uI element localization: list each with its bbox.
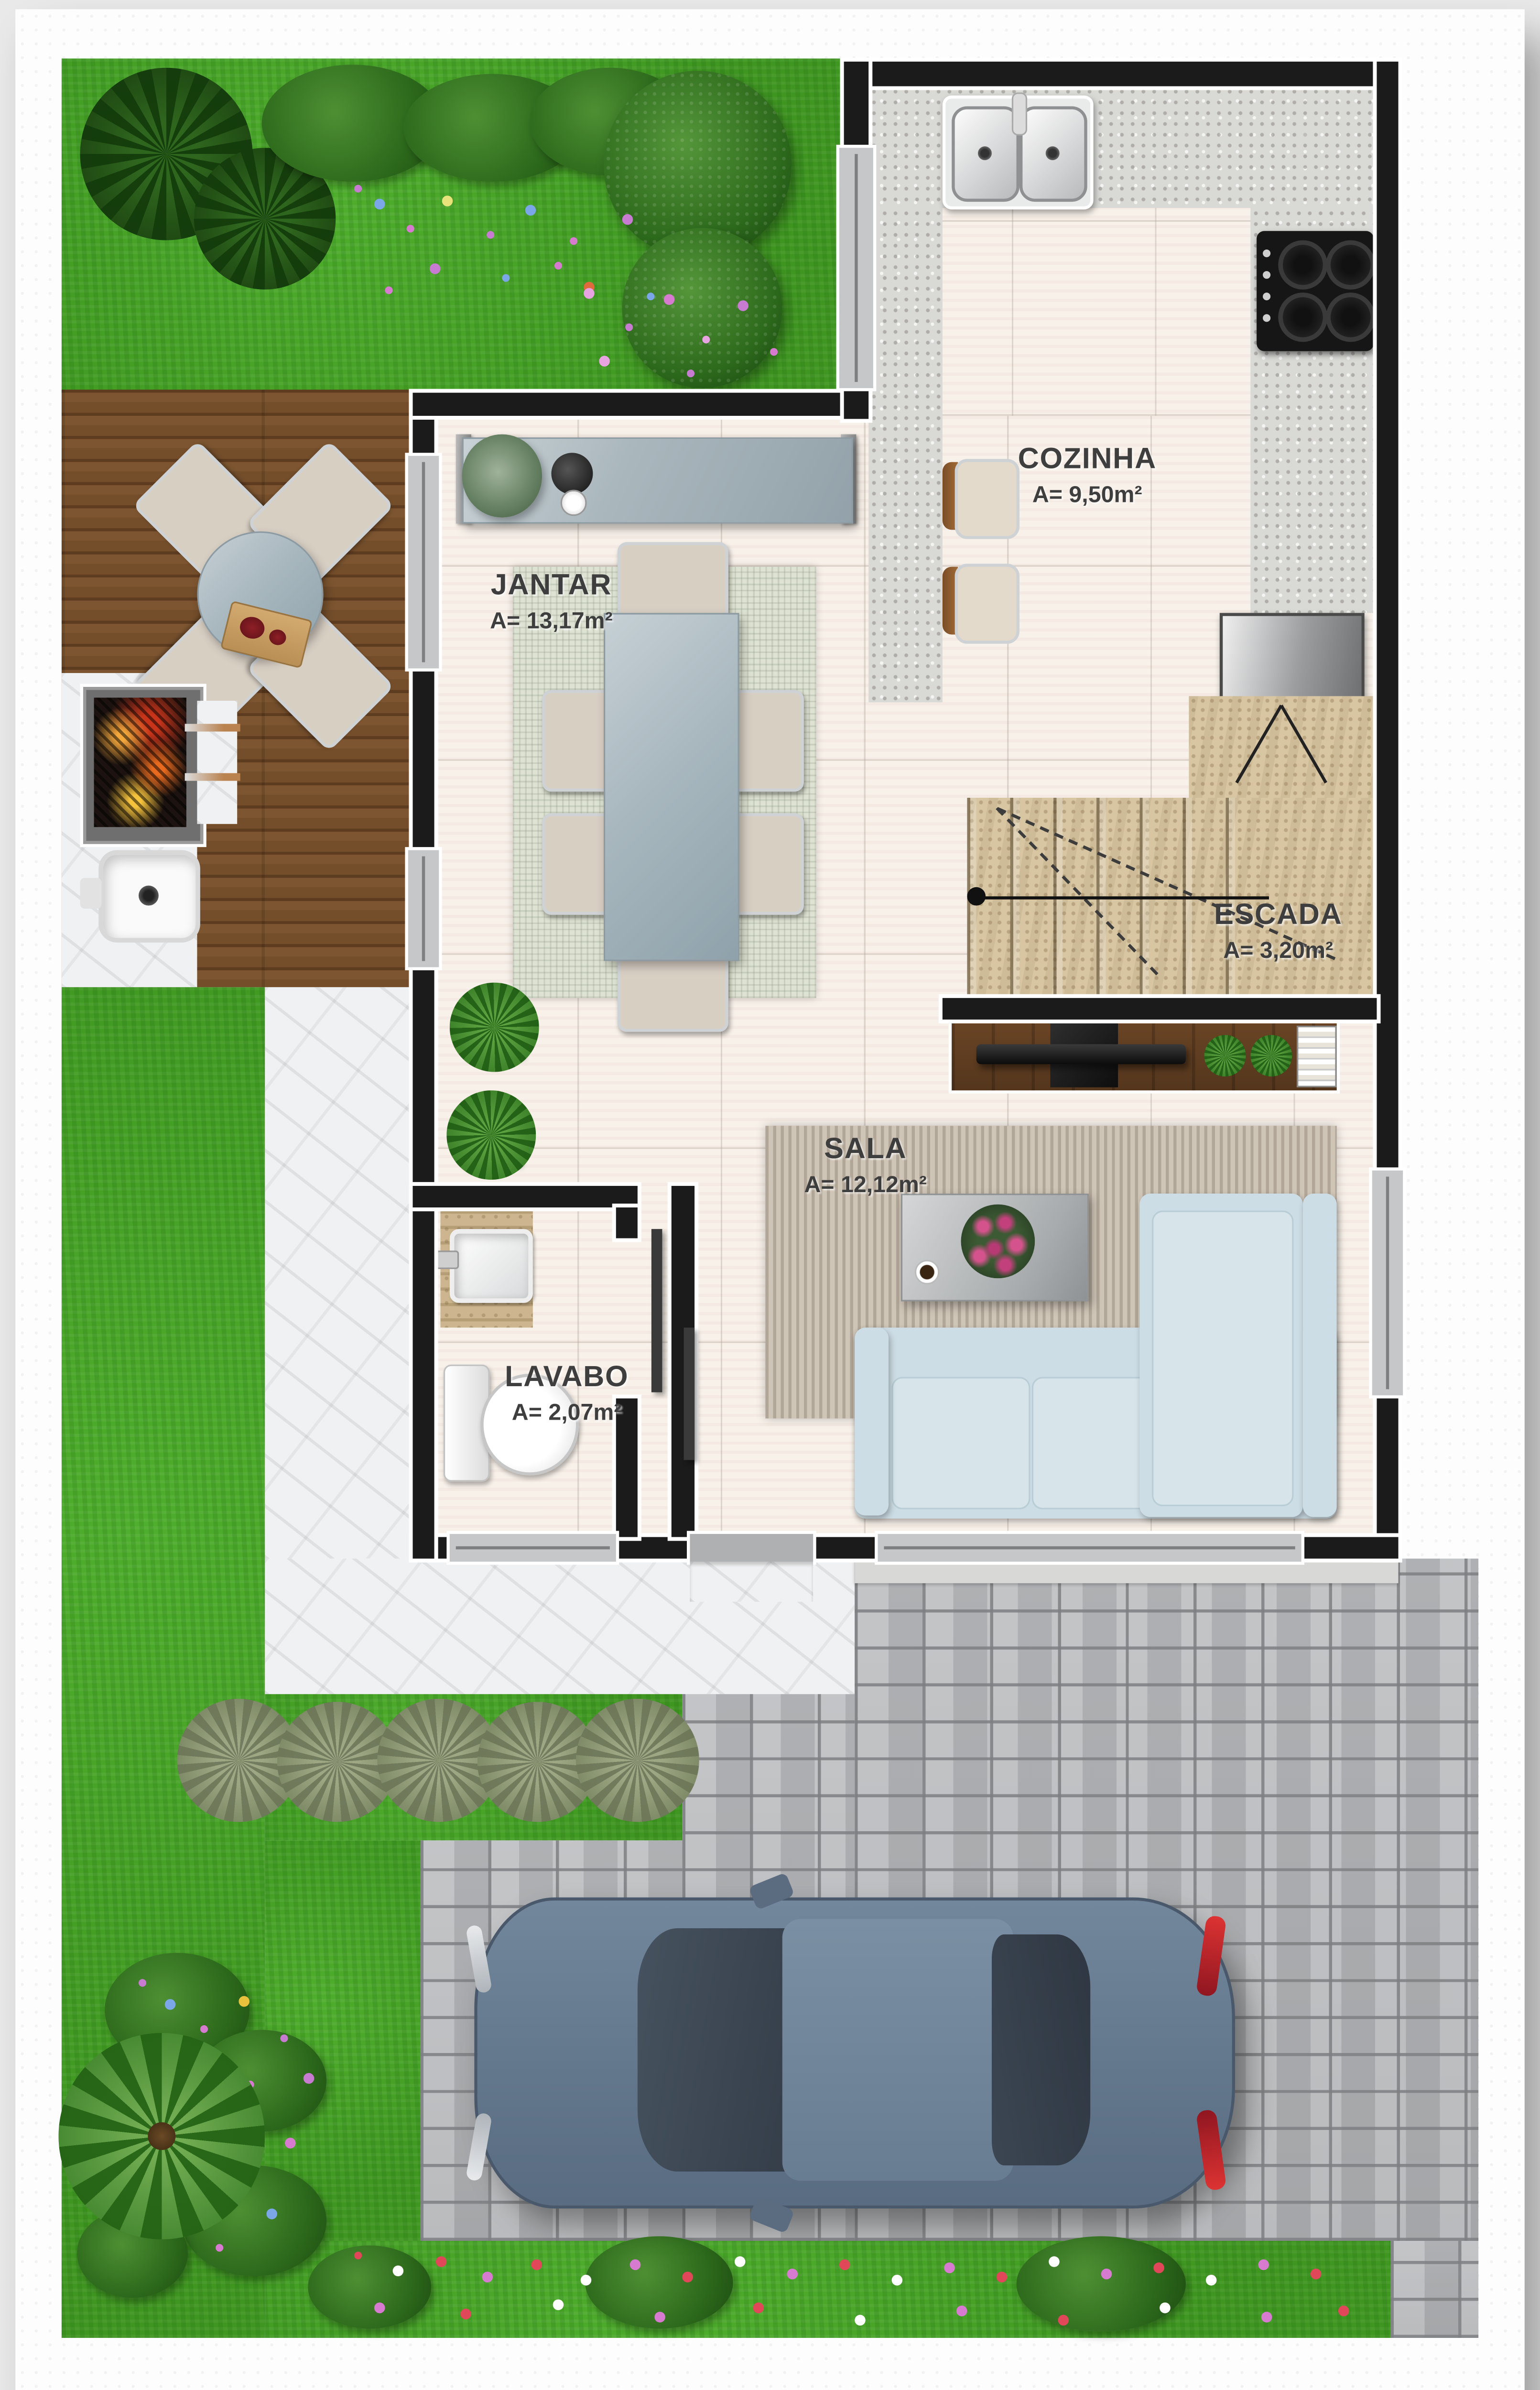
burner-icon bbox=[1278, 240, 1327, 290]
flowerbed-shrub bbox=[308, 2246, 431, 2329]
bar-stool-icon bbox=[943, 564, 1013, 638]
coffee-cup-icon bbox=[915, 1260, 940, 1285]
wall-lavabo-right bbox=[616, 1207, 638, 1238]
driveway-pavers-4 bbox=[1390, 2241, 1478, 2338]
window-glass-line bbox=[422, 856, 425, 961]
sink-bowl-icon bbox=[1019, 106, 1087, 202]
burner-icon bbox=[1326, 293, 1375, 342]
flowerbed-shrub bbox=[1017, 2236, 1186, 2332]
room-area: A= 13,17m² bbox=[412, 608, 690, 635]
window-glass-line bbox=[456, 1546, 610, 1549]
yucca-plant-icon bbox=[446, 1090, 536, 1180]
drain-icon bbox=[1046, 146, 1060, 160]
stool-cushion bbox=[955, 564, 1019, 644]
room-area: A= 2,07m² bbox=[428, 1400, 705, 1426]
flower-bouquet-icon bbox=[961, 1205, 1035, 1279]
faucet-icon bbox=[1012, 92, 1027, 135]
sofa-armrest bbox=[855, 1327, 889, 1515]
living-window-right bbox=[1372, 1171, 1403, 1395]
bbq-grill-icon bbox=[83, 687, 203, 844]
room-name: ESCADA bbox=[1139, 900, 1417, 934]
lawn-flowerbed bbox=[265, 2241, 1390, 2338]
gas-cooktop-icon bbox=[1257, 231, 1374, 351]
washbasin-icon bbox=[450, 1229, 533, 1303]
faucet-icon bbox=[80, 878, 102, 909]
stair-start-dot bbox=[967, 887, 986, 906]
front-door-step bbox=[690, 1562, 813, 1602]
wall-lavabo-top bbox=[412, 1186, 637, 1207]
meat-icon bbox=[268, 628, 288, 647]
dining-chair-icon bbox=[730, 813, 804, 915]
kitchen-window bbox=[839, 148, 873, 388]
lavabo-window bbox=[450, 1534, 616, 1562]
marble-walkway bbox=[265, 987, 412, 1558]
sink-bowl-icon bbox=[952, 106, 1019, 202]
living-window-bottom bbox=[878, 1534, 1301, 1562]
room-label-lavabo: LAVABO A= 2,07m² bbox=[428, 1361, 705, 1426]
left-window bbox=[408, 850, 439, 967]
room-label-cozinha: COZINHA A= 9,50m² bbox=[949, 444, 1226, 508]
agave-icon bbox=[576, 1699, 699, 1822]
wall-jantar-top bbox=[412, 393, 868, 416]
exterior-sill-strip bbox=[855, 1559, 1398, 1584]
wall-under-stairs bbox=[943, 998, 1377, 1020]
burner-icon bbox=[1278, 293, 1327, 342]
palm-trunk bbox=[148, 2122, 175, 2150]
deck-sliding-door bbox=[408, 456, 439, 669]
car-icon bbox=[474, 1898, 1235, 2209]
yucca-plant-icon bbox=[450, 983, 539, 1072]
garden-flowers-icon bbox=[354, 185, 362, 193]
garden-flowers-icon bbox=[554, 262, 562, 270]
car-roof bbox=[782, 1919, 1013, 2181]
console-plant-icon bbox=[1204, 1035, 1246, 1076]
room-area: A= 12,12m² bbox=[727, 1172, 1004, 1198]
outdoor-sink-icon bbox=[98, 850, 200, 943]
sofa-armrest bbox=[1303, 1194, 1337, 1517]
knob-icon bbox=[1263, 250, 1270, 257]
console-plant-icon bbox=[1250, 1035, 1292, 1076]
room-name: JANTAR bbox=[412, 570, 690, 604]
refrigerator-icon bbox=[1220, 613, 1365, 702]
room-area: A= 3,20m² bbox=[1139, 938, 1417, 964]
room-name: COZINHA bbox=[949, 444, 1226, 478]
dining-chair-icon bbox=[618, 952, 728, 1032]
books-stack-icon bbox=[1297, 1026, 1337, 1087]
kitchen-bar-counter bbox=[868, 208, 943, 702]
window-glass-line bbox=[1386, 1177, 1389, 1390]
tree-icon bbox=[622, 228, 782, 388]
dining-chair-icon bbox=[730, 690, 804, 792]
window-glass-line bbox=[884, 1546, 1295, 1549]
sofa-cushion bbox=[1152, 1210, 1293, 1506]
faucet-icon bbox=[436, 1250, 459, 1269]
grill-fire-icon bbox=[94, 698, 186, 827]
skewer-icon bbox=[185, 724, 240, 731]
room-label-jantar: JANTAR A= 13,17m² bbox=[412, 570, 690, 634]
meat-icon bbox=[238, 614, 267, 641]
skewer-icon bbox=[185, 773, 240, 781]
tv-icon bbox=[976, 1044, 1186, 1065]
front-door bbox=[690, 1534, 813, 1562]
burner-icon bbox=[1326, 240, 1375, 290]
room-label-escada: ESCADA A= 3,20m² bbox=[1139, 900, 1417, 964]
flower-bed-icon bbox=[354, 2252, 362, 2260]
drain-icon bbox=[139, 886, 159, 906]
double-kitchen-sink-icon bbox=[943, 96, 1094, 209]
shrub-flowers-icon bbox=[139, 1979, 146, 1987]
floor-plan: COZINHA A= 9,50m² JANTAR A= 13,17m² ESCA… bbox=[0, 0, 1540, 2390]
buffet-espresso-icon bbox=[551, 453, 593, 494]
wall-top bbox=[844, 62, 1399, 87]
drain-icon bbox=[978, 146, 992, 160]
car-rear-window bbox=[992, 1934, 1090, 2165]
room-name: SALA bbox=[727, 1133, 1004, 1167]
grill-side-slab bbox=[197, 701, 237, 824]
coffee-cup-icon bbox=[561, 490, 587, 516]
dining-table-icon bbox=[604, 613, 739, 961]
flowerbed-shrub bbox=[585, 2236, 733, 2328]
room-label-sala: SALA A= 12,12m² bbox=[727, 1133, 1004, 1198]
window-glass-line bbox=[855, 154, 857, 382]
room-area: A= 9,50m² bbox=[949, 482, 1226, 508]
room-name: LAVABO bbox=[428, 1361, 705, 1395]
potted-plant-icon bbox=[462, 435, 542, 518]
car-windshield bbox=[638, 1928, 807, 2172]
sofa-cushion bbox=[892, 1377, 1030, 1509]
